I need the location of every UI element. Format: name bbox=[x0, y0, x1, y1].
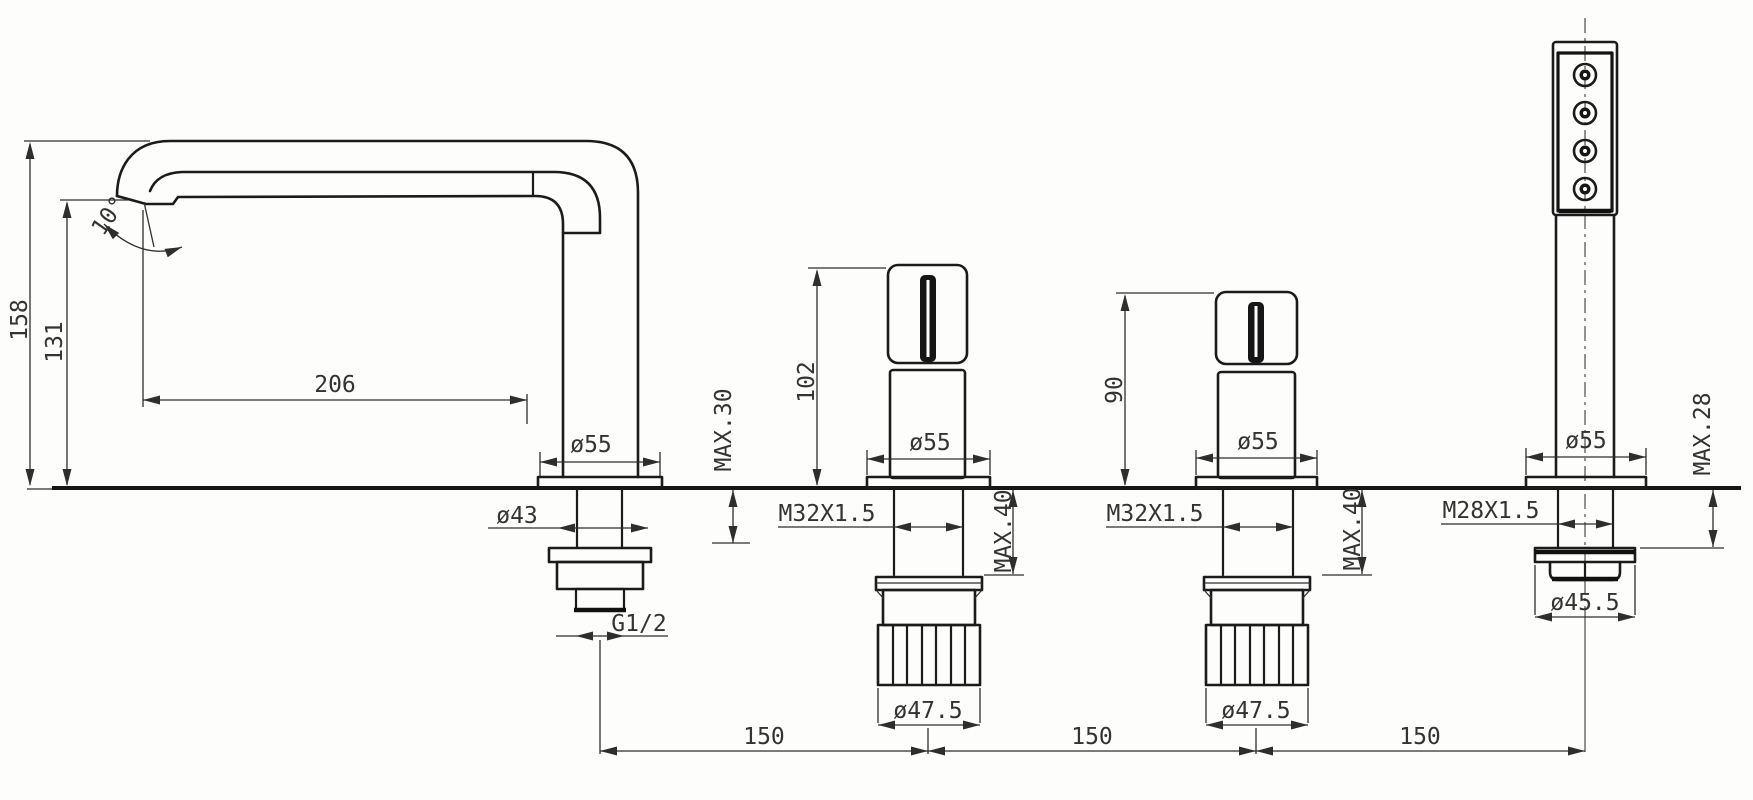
dim-label-right-handle-height: 90 bbox=[1102, 376, 1128, 404]
dim-spout-outlet-height-131: 131 bbox=[42, 200, 128, 486]
right-handle-outline bbox=[1196, 292, 1317, 685]
dim-shower-deck-max-28: MAX.28 bbox=[1640, 392, 1724, 548]
dim-spout-deck-max-30: MAX.30 bbox=[711, 388, 750, 543]
faucet-dimension-drawing: 158 131 10° 206 ø55 ø43 MAX.30 G1/2 bbox=[0, 0, 1753, 800]
dim-right-handle-nut-dia-475: ø47.5 bbox=[1206, 688, 1308, 730]
dim-label-spout-outlet-height: 131 bbox=[42, 321, 68, 363]
dim-shower-thread-m28: M28X1.5 bbox=[1441, 498, 1613, 529]
dim-left-handle-base-dia-55: ø55 bbox=[867, 430, 990, 475]
dim-label-spacing-2: 150 bbox=[1071, 724, 1113, 750]
dim-spout-base-dia-55: ø55 bbox=[540, 432, 660, 476]
dim-label-left-handle-deck-max: MAX.40 bbox=[991, 489, 1017, 572]
spout-outline bbox=[117, 141, 662, 610]
dim-label-spout-reach: 206 bbox=[314, 372, 356, 398]
dim-label-shower-thread: M28X1.5 bbox=[1443, 498, 1540, 524]
left-handle-outline bbox=[867, 265, 990, 685]
dim-right-handle-thread-m32: M32X1.5 bbox=[1106, 501, 1293, 532]
dim-left-handle-deck-max-40: MAX.40 bbox=[984, 489, 1024, 575]
dim-label-spout-height: 158 bbox=[7, 299, 33, 341]
dim-spout-thread-g12: G1/2 bbox=[556, 611, 668, 641]
drawing-canvas: 158 131 10° 206 ø55 ø43 MAX.30 G1/2 bbox=[0, 0, 1753, 800]
dim-left-handle-height-102: 102 bbox=[794, 268, 886, 486]
dim-label-spout-shank-dia: ø43 bbox=[496, 503, 538, 529]
dim-shower-base-dia-55: ø55 bbox=[1526, 428, 1646, 475]
dim-label-left-handle-base-dia: ø55 bbox=[909, 430, 951, 456]
dim-right-handle-deck-max-40: MAX.40 bbox=[1322, 487, 1372, 575]
dim-label-right-handle-deck-max: MAX.40 bbox=[1340, 487, 1366, 570]
dim-right-handle-base-dia-55: ø55 bbox=[1196, 429, 1317, 475]
dim-label-spout-thread: G1/2 bbox=[611, 611, 666, 637]
dim-left-handle-thread-m32: M32X1.5 bbox=[778, 501, 963, 532]
dim-right-handle-height-90: 90 bbox=[1102, 293, 1214, 486]
dim-spout-height-158: 158 bbox=[7, 141, 150, 486]
dim-spout-reach-206: 206 bbox=[143, 210, 527, 424]
dim-left-handle-nut-dia-475: ø47.5 bbox=[878, 688, 980, 730]
dim-label-spout-base-dia: ø55 bbox=[570, 432, 612, 458]
dim-hole-spacing-chain: 150 150 150 bbox=[600, 640, 1585, 756]
dim-label-right-handle-thread: M32X1.5 bbox=[1107, 501, 1204, 527]
dim-label-right-handle-base-dia: ø55 bbox=[1237, 429, 1279, 455]
dim-label-shower-deck-max: MAX.28 bbox=[1690, 392, 1716, 475]
dim-label-shower-base-dia: ø55 bbox=[1565, 428, 1607, 454]
dim-label-spacing-3: 150 bbox=[1399, 724, 1441, 750]
hand-shower-outline bbox=[1526, 18, 1646, 752]
dim-label-shower-nut-dia: ø45.5 bbox=[1550, 590, 1619, 616]
dim-label-left-handle-thread: M32X1.5 bbox=[779, 501, 876, 527]
dim-label-spacing-1: 150 bbox=[743, 724, 785, 750]
dim-spout-shank-dia-43: ø43 bbox=[488, 503, 648, 533]
dim-label-left-handle-nut-dia: ø47.5 bbox=[893, 698, 962, 724]
dim-label-right-handle-nut-dia: ø47.5 bbox=[1221, 698, 1290, 724]
dim-label-left-handle-height: 102 bbox=[794, 361, 820, 403]
dim-label-spout-deck-max: MAX.30 bbox=[711, 388, 737, 471]
